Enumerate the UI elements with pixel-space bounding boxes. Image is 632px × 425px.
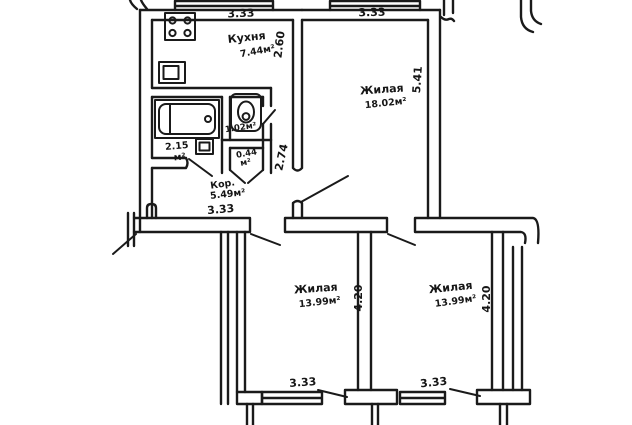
room-label-living-top: Жилая: [359, 81, 404, 97]
room-label-kitchen: Кухня: [227, 29, 266, 46]
stove-icon: [165, 13, 195, 40]
door-bathroom: [189, 159, 212, 176]
door-entry: [113, 234, 136, 254]
window-kitchen: [175, 1, 273, 10]
area-label-corridor: 5.49м²: [210, 187, 246, 202]
area-unit-bathroom: м²: [173, 152, 186, 164]
dim-bottom-left-window: 3.33: [289, 375, 317, 390]
room-label-living-bottom-left: Жилая: [293, 280, 338, 296]
dim-bottom-right-depth: 4.20: [480, 285, 493, 312]
floor-plan-svg: 3.33 3.33 2.60 5.41 2.74 3.33 4.20 4.20 …: [0, 0, 632, 425]
door-bottom-left-room: [251, 234, 280, 245]
dim-passage-height: 2.74: [272, 142, 290, 172]
stub-top-right: [521, 0, 541, 32]
area-label-bathroom: 2.15: [165, 140, 189, 153]
room-labels: Кухня 7.44м² Жилая 18.02м² 2.15 м² 1.02м…: [165, 29, 478, 310]
stub-top-left: [130, 0, 147, 9]
stub-top-middle: [441, 0, 454, 21]
dim-bottom-right-window: 3.33: [419, 375, 447, 391]
door-bottom-right-room: [388, 234, 415, 245]
cabinet-icon: [196, 139, 213, 154]
window-bottom-left: [262, 392, 322, 404]
window-bottom-right: [400, 392, 445, 404]
door-closet: [230, 170, 263, 183]
dim-living-top-depth: 5.41: [410, 66, 425, 94]
area-label-living-bottom-left: 13.99м²: [298, 295, 341, 310]
dim-living-top-width: 3.33: [358, 6, 385, 19]
door-living-top: [301, 176, 348, 202]
dim-kitchen-width: 3.33: [227, 7, 255, 21]
floor-plan: 3.33 3.33 2.60 5.41 2.74 3.33 4.20 4.20 …: [0, 0, 632, 425]
dim-bottom-left-depth: 4.20: [352, 284, 365, 311]
area-label-living-top: 18.02м²: [364, 96, 407, 111]
sink-icon: [159, 62, 185, 83]
door-wc: [263, 110, 275, 124]
exterior-walls: [128, 10, 538, 425]
dimension-labels: 3.33 3.33 2.60 5.41 2.74 3.33 4.20 4.20 …: [207, 6, 493, 391]
area-unit-closet: м²: [240, 157, 253, 169]
dim-corridor-width: 3.33: [207, 202, 235, 217]
area-label-living-bottom-right: 13.99м²: [434, 293, 477, 310]
bathtub-icon: [155, 100, 219, 138]
